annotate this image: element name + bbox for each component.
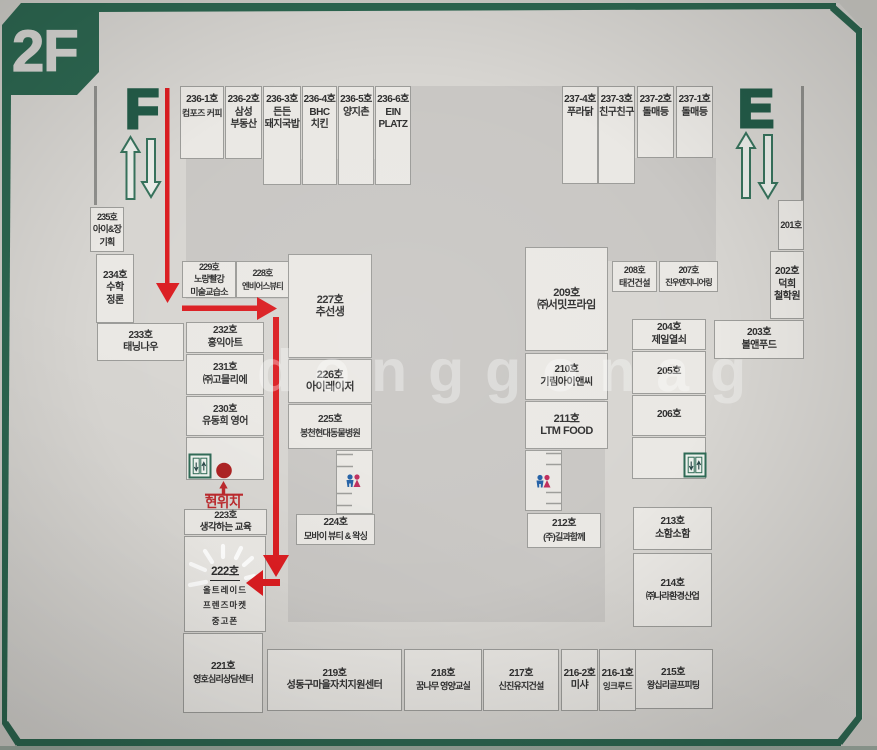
svg-text:E: E	[738, 79, 774, 139]
svg-text:2F: 2F	[12, 19, 78, 84]
svg-text:현위치: 현위치	[205, 495, 241, 510]
svg-text:F: F	[125, 77, 159, 140]
